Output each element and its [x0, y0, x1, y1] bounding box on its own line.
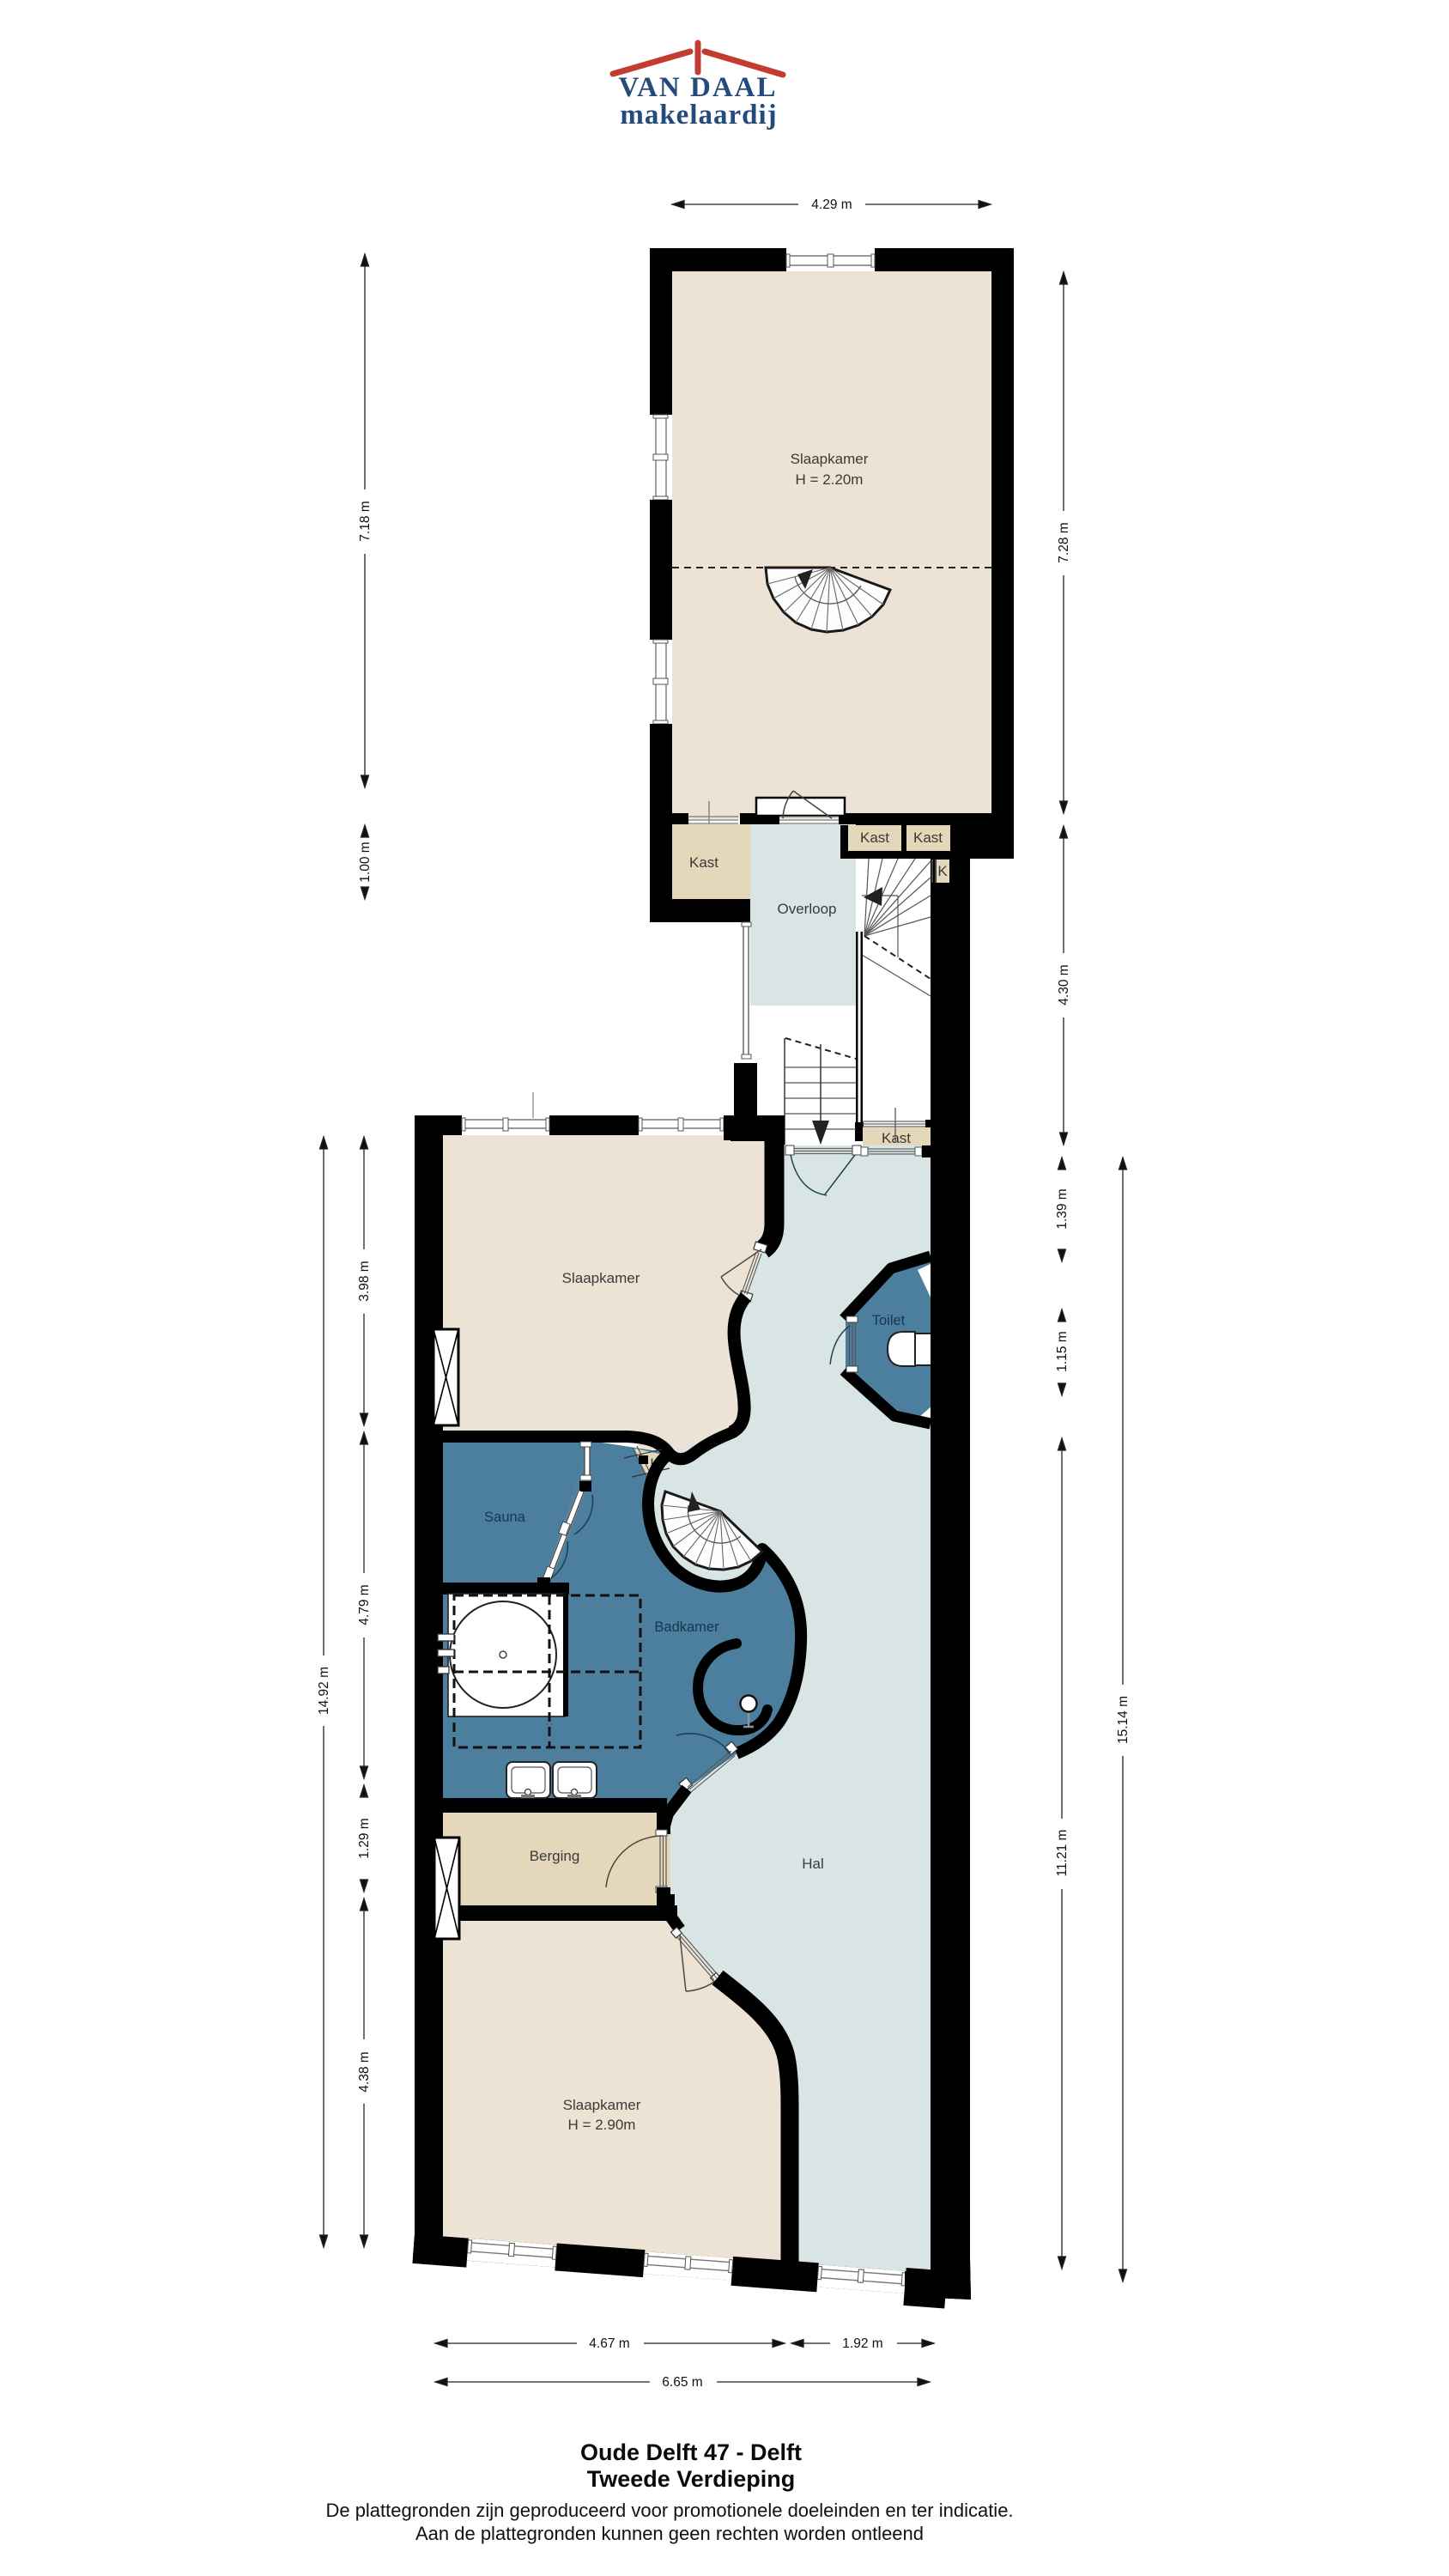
svg-text:Slaapkamer: Slaapkamer — [562, 1270, 640, 1286]
svg-text:7.18 m: 7.18 m — [358, 501, 373, 541]
svg-text:H = 2.90m: H = 2.90m — [568, 2117, 636, 2133]
svg-text:Hal: Hal — [802, 1856, 824, 1872]
svg-text:1.15 m: 1.15 m — [1055, 1331, 1070, 1371]
svg-text:Toilet: Toilet — [872, 1313, 906, 1328]
svg-text:Kast: Kast — [860, 829, 889, 846]
svg-text:4.67 m: 4.67 m — [589, 2336, 629, 2351]
svg-text:Sauna: Sauna — [484, 1510, 526, 1525]
svg-text:Aan de plattegronden kunnen ge: Aan de plattegronden kunnen geen rechten… — [415, 2523, 924, 2544]
svg-text:1.29 m: 1.29 m — [357, 1818, 372, 1858]
svg-text:4.38 m: 4.38 m — [357, 2051, 372, 2092]
svg-text:H = 2.20m: H = 2.20m — [796, 471, 864, 488]
svg-text:1.00 m: 1.00 m — [358, 841, 373, 882]
svg-text:4.30 m: 4.30 m — [1057, 964, 1071, 1005]
svg-text:3.98 m: 3.98 m — [357, 1261, 372, 1301]
svg-text:15.14 m: 15.14 m — [1116, 1696, 1131, 1744]
svg-text:Kast: Kast — [882, 1130, 911, 1146]
svg-text:4.29 m: 4.29 m — [811, 197, 852, 212]
svg-text:Oude Delft 47 - Delft: Oude Delft 47 - Delft — [580, 2439, 802, 2465]
svg-text:1.39 m: 1.39 m — [1055, 1188, 1070, 1229]
svg-text:Berging: Berging — [530, 1848, 580, 1864]
svg-text:Kast: Kast — [689, 854, 718, 871]
svg-text:makelaardij: makelaardij — [620, 100, 777, 131]
svg-text:Kast: Kast — [913, 829, 943, 846]
svg-text:Tweede Verdieping: Tweede Verdieping — [587, 2466, 796, 2492]
svg-text:De plattegronden zijn geproduc: De plattegronden zijn geproduceerd voor … — [325, 2500, 1013, 2521]
svg-text:14.92 m: 14.92 m — [317, 1667, 331, 1715]
svg-text:VAN DAAL: VAN DAAL — [619, 72, 778, 103]
svg-text:K: K — [937, 863, 948, 879]
svg-text:Badkamer: Badkamer — [654, 1619, 719, 1635]
svg-text:11.21 m: 11.21 m — [1055, 1830, 1070, 1877]
svg-text:6.65 m: 6.65 m — [662, 2375, 702, 2390]
svg-text:Slaapkamer: Slaapkamer — [791, 451, 869, 467]
svg-text:Overloop: Overloop — [778, 901, 837, 917]
svg-text:4.79 m: 4.79 m — [357, 1584, 372, 1625]
svg-text:1.92 m: 1.92 m — [842, 2336, 882, 2351]
svg-text:7.28 m: 7.28 m — [1057, 522, 1071, 562]
svg-text:Slaapkamer: Slaapkamer — [563, 2097, 641, 2113]
